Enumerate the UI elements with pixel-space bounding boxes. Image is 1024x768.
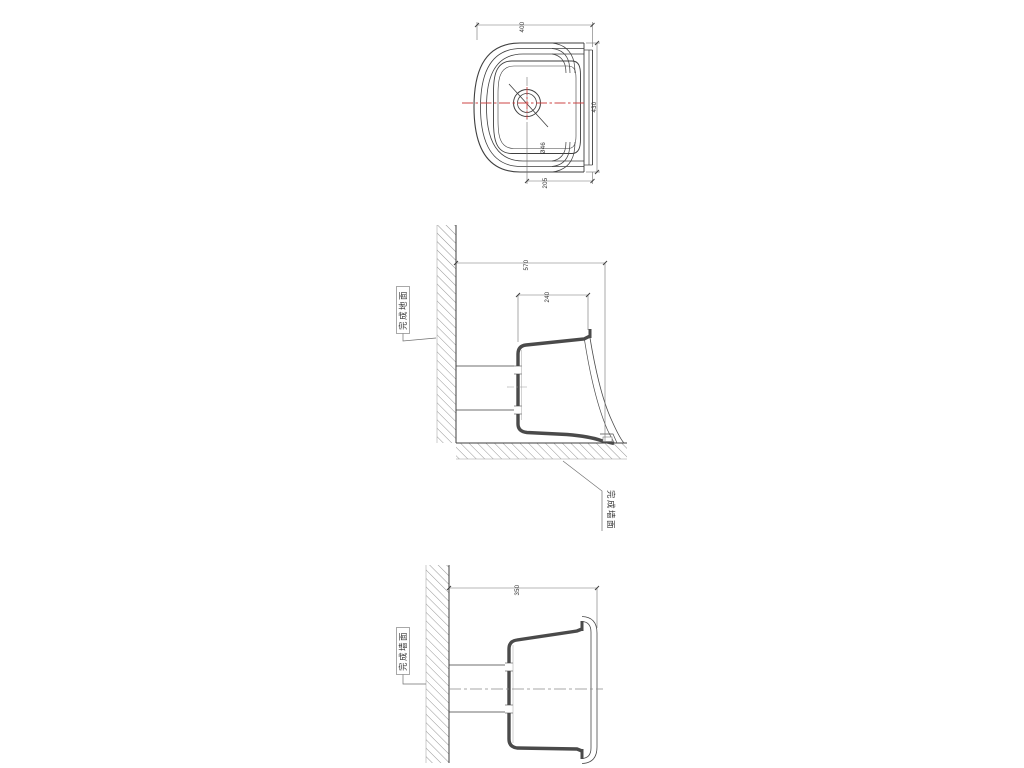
drain-leader-line [509,84,548,127]
side-dim-depth-text: 350 [515,584,521,595]
front-dim-overall: 570 [454,259,607,441]
front-wall-callout: 完成墙面 [563,461,616,531]
side-wall-strip [426,565,449,763]
side-section-view: 350 完成墙面 [397,565,604,764]
front-section-view: 570 240 完成地面 完成墙面 [397,225,628,531]
front-wall-leader [563,461,602,531]
front-wall-strip [456,443,627,459]
front-floor-leader [403,334,436,342]
side-dim-depth: 350 [447,584,599,628]
front-floor-callout: 完成地面 [397,287,437,342]
side-wall-callout: 完成墙面 [397,628,427,685]
side-projection-lines [449,665,505,712]
plan-bowl [494,61,581,154]
plan-drain-label: Ø46 [541,142,547,155]
front-dim-overall-text: 570 [524,259,530,270]
front-floor-strip [437,225,456,443]
plan-view: 400 430 205 Ø46 [462,21,600,188]
drawing-sheet: 400 430 205 Ø46 [0,0,1024,768]
side-basin-section [505,617,597,764]
plan-dim-top-text: 400 [520,21,526,32]
front-dim-inner-text: 240 [545,291,551,302]
front-basin-section [514,329,624,444]
side-wall-leader [403,675,426,685]
technical-drawing: 400 430 205 Ø46 [0,0,1024,768]
plan-dim-right: 430 [586,41,600,174]
front-wall-label: 完成墙面 [606,490,616,530]
plan-dim-right-text: 430 [592,101,598,112]
front-dim-inner: 240 [516,291,590,342]
plan-drain [509,84,548,127]
front-floor-label: 完成地面 [398,290,408,330]
plan-centerlines [462,77,586,129]
plan-corner-tabs [552,43,575,172]
plan-dim-bottom-text: 205 [543,177,549,188]
side-wall-label: 完成墙面 [398,631,408,671]
